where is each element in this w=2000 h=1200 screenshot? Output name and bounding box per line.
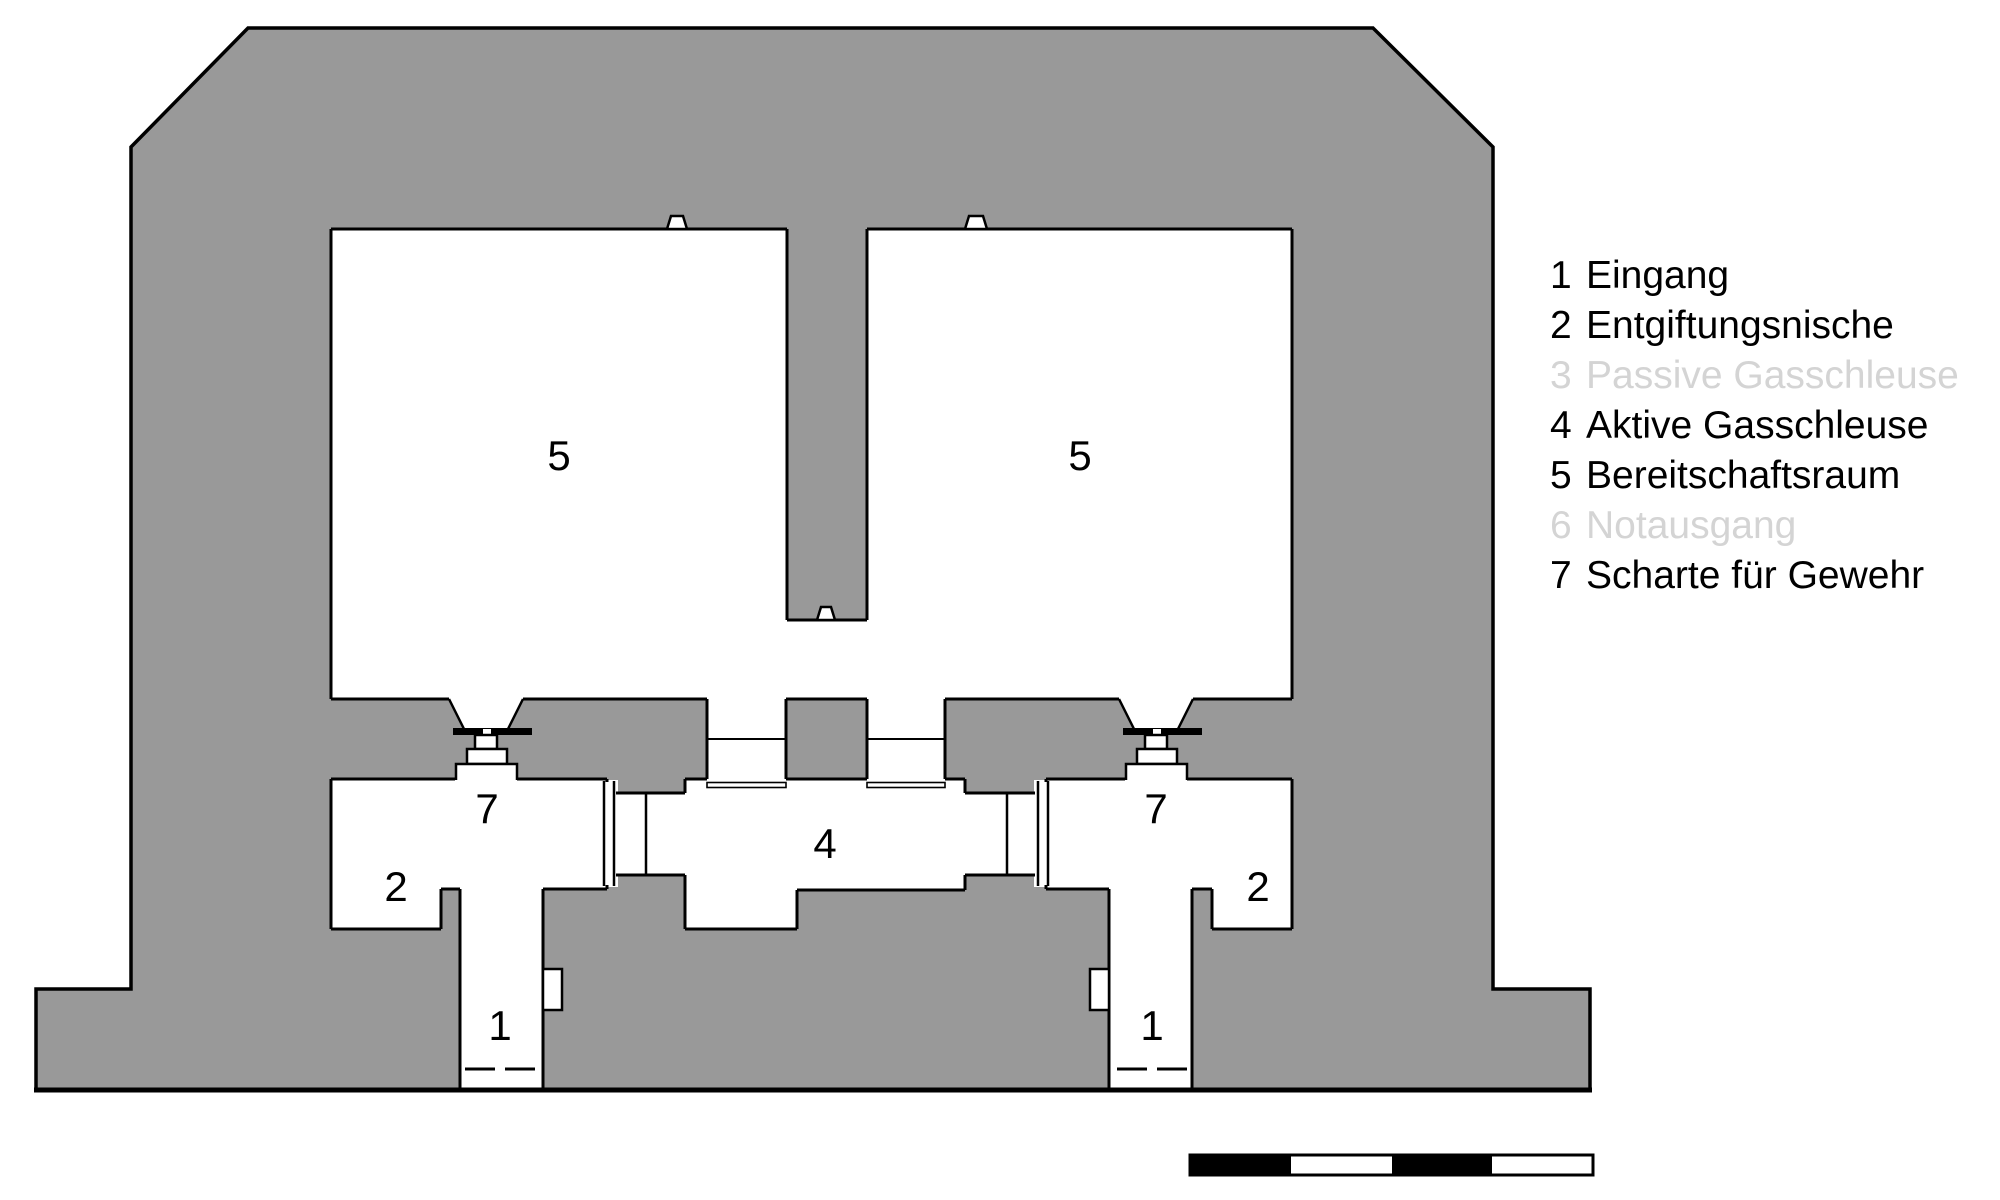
entrance-corridor-left-fill: [460, 889, 543, 1089]
rifle-room-left-fill: [331, 779, 607, 889]
corridor-niche-left: [543, 969, 562, 1010]
airlock-alcove-fill: [685, 875, 797, 929]
legend-item-5: 5Bereitschaftsraum: [1550, 454, 1900, 497]
entrance-corridor-right-fill: [1109, 889, 1192, 1089]
label-airlock: 4: [813, 820, 836, 867]
label-rifle-port-right: 7: [1144, 785, 1167, 832]
legend-item-6: 6Notausgang: [1550, 504, 1796, 547]
mount-stem-left: [475, 735, 497, 749]
legend: 1Eingang 2Entgiftungsnische 3Passive Gas…: [1550, 254, 1959, 597]
scale-segment-2: [1291, 1155, 1392, 1175]
floorplan-svg: 5 5 4 7 7 2 2 1 1 1Eingang 2Entgiftungsn…: [0, 0, 2000, 1200]
mount-mid-right: [1137, 749, 1177, 764]
airlock-door-symbol-left: [707, 783, 786, 788]
legend-item-3: 3Passive Gasschleuse: [1550, 354, 1959, 397]
label-ready-room-left: 5: [547, 432, 570, 479]
airlock-door-symbol-right: [867, 783, 945, 788]
label-entrance-right: 1: [1140, 1002, 1163, 1049]
legend-item-7: 7Scharte für Gewehr: [1550, 554, 1924, 597]
mount-stem-right: [1145, 735, 1167, 749]
neck-left-fill: [616, 793, 685, 875]
door-left-fill: [600, 780, 618, 887]
corridor-niche-right: [1090, 969, 1109, 1010]
scale-segment-1: [1190, 1155, 1291, 1175]
door-right-fill: [1034, 780, 1052, 887]
vent-notch-right-room: [965, 216, 987, 229]
mount-mid-left: [467, 749, 507, 764]
legend-item-1: 1Eingang: [1550, 254, 1729, 297]
label-ready-room-right: 5: [1068, 432, 1091, 479]
label-entrance-left: 1: [488, 1002, 511, 1049]
scale-bar: [1190, 1155, 1593, 1175]
label-decon-right: 2: [1246, 863, 1269, 910]
connecting-band-fill: [786, 621, 867, 699]
neck-right-fill: [965, 793, 1035, 875]
vent-notch-left-room: [667, 216, 687, 229]
bunker-floorplan-page: 5 5 4 7 7 2 2 1 1 1Eingang 2Entgiftungsn…: [0, 0, 2000, 1200]
legend-item-2: 2Entgiftungsnische: [1550, 304, 1894, 347]
vent-notch-divider: [817, 607, 835, 620]
bunker-wall-outline: [36, 28, 1590, 1090]
label-decon-left: 2: [384, 863, 407, 910]
label-rifle-port-left: 7: [475, 785, 498, 832]
scale-segment-3: [1392, 1155, 1492, 1175]
scale-segment-4: [1492, 1155, 1593, 1175]
legend-item-4: 4Aktive Gasschleuse: [1550, 404, 1929, 447]
